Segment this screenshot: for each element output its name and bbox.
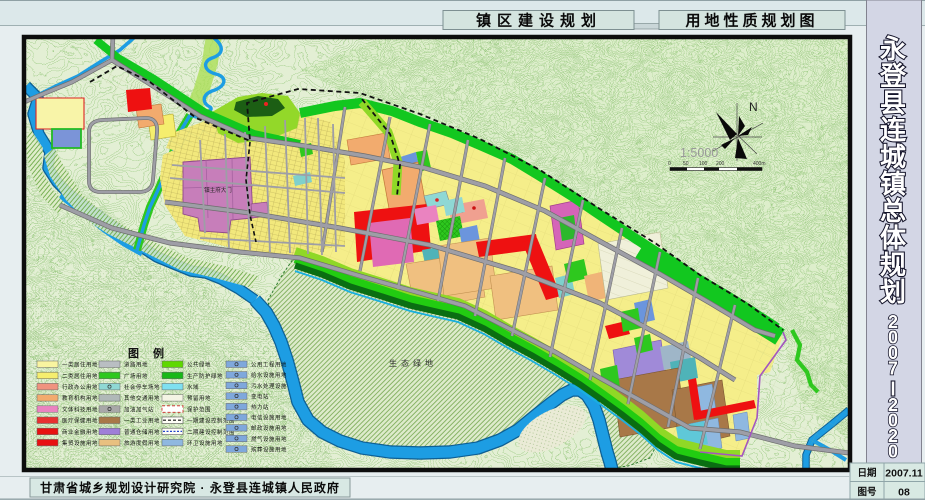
svg-text:登: 登 [879, 61, 907, 91]
svg-text:集贸设施用地: 集贸设施用地 [62, 439, 98, 447]
svg-text:1:5000: 1:5000 [680, 146, 718, 160]
svg-text:医疗保健用地: 医疗保健用地 [62, 417, 98, 425]
svg-text:公共绿地: 公共绿地 [187, 361, 211, 369]
svg-text:生产防护绿地: 生产防护绿地 [187, 372, 223, 380]
svg-text:200: 200 [716, 161, 725, 167]
svg-text:2007.11: 2007.11 [885, 468, 923, 480]
svg-text:预留用地: 预留用地 [187, 394, 211, 402]
svg-text:镇: 镇 [880, 169, 906, 199]
svg-text:普通仓储用地: 普通仓储用地 [124, 428, 160, 436]
svg-text:永: 永 [880, 34, 906, 64]
svg-text:其他交通用地: 其他交通用地 [124, 394, 160, 402]
svg-text:100: 100 [699, 161, 708, 167]
svg-text:划: 划 [880, 277, 906, 307]
svg-text:图号: 图号 [857, 487, 877, 498]
svg-text:环卫设施用地: 环卫设施用地 [187, 439, 223, 447]
svg-text:二类居住用地: 二类居住用地 [62, 372, 98, 380]
svg-text:甘肃省城乡规划设计研究院 · 永登县连城镇人民政府: 甘肃省城乡规划设计研究院 · 永登县连城镇人民政府 [40, 480, 340, 495]
svg-text:城: 城 [880, 142, 906, 172]
svg-text:总: 总 [880, 196, 906, 226]
svg-text:殡葬设施用地: 殡葬设施用地 [251, 445, 287, 453]
svg-text:0: 0 [888, 442, 898, 462]
svg-text:一类工业用地: 一类工业用地 [124, 417, 160, 425]
svg-text:体: 体 [880, 223, 907, 253]
svg-text:道路用地: 道路用地 [124, 361, 148, 369]
svg-text:给水设施用地: 给水设施用地 [251, 371, 287, 379]
svg-text:污水处理设施: 污水处理设施 [251, 382, 287, 390]
svg-text:行政办公用地: 行政办公用地 [62, 383, 98, 391]
svg-text:50: 50 [683, 161, 689, 167]
svg-text:电信设施用地: 电信设施用地 [251, 414, 287, 422]
svg-text:用地性质规划图: 用地性质规划图 [685, 12, 818, 30]
svg-text:县: 县 [880, 88, 906, 118]
svg-text:保护范围: 保护范围 [187, 405, 211, 413]
svg-text:社会停车场地: 社会停车场地 [124, 383, 160, 391]
svg-text:一类居住用地: 一类居住用地 [62, 361, 98, 369]
svg-text:邮政设施用地: 邮政设施用地 [251, 424, 287, 432]
svg-text:400m: 400m [753, 161, 766, 167]
svg-text:变电站: 变电站 [251, 392, 269, 400]
svg-text:广场用地: 广场用地 [124, 372, 148, 380]
svg-text:0: 0 [668, 161, 671, 167]
svg-text:商业金融用地: 商业金融用地 [62, 428, 98, 436]
svg-text:7: 7 [888, 359, 898, 379]
svg-text:水域: 水域 [187, 383, 199, 391]
svg-text:燃气设施用地: 燃气设施用地 [251, 435, 287, 443]
svg-text:08: 08 [898, 487, 910, 499]
svg-text:N: N [749, 100, 758, 114]
svg-text:旅游度假用地: 旅游度假用地 [124, 439, 160, 447]
svg-text:公用工程用地: 公用工程用地 [251, 361, 287, 369]
svg-text:连: 连 [880, 115, 907, 145]
svg-text:日期: 日期 [857, 467, 876, 479]
svg-text:图例: 图例 [128, 346, 178, 360]
svg-text:加油加气站: 加油加气站 [124, 405, 154, 413]
svg-text:文体科技用地: 文体科技用地 [62, 405, 98, 413]
svg-text:生态绿地: 生态绿地 [389, 358, 437, 368]
svg-text:教育机构用地: 教育机构用地 [62, 394, 98, 402]
svg-text:热力站: 热力站 [251, 403, 269, 411]
svg-text:镇区建设规划: 镇区建设规划 [476, 12, 602, 30]
svg-text:规: 规 [880, 250, 906, 280]
